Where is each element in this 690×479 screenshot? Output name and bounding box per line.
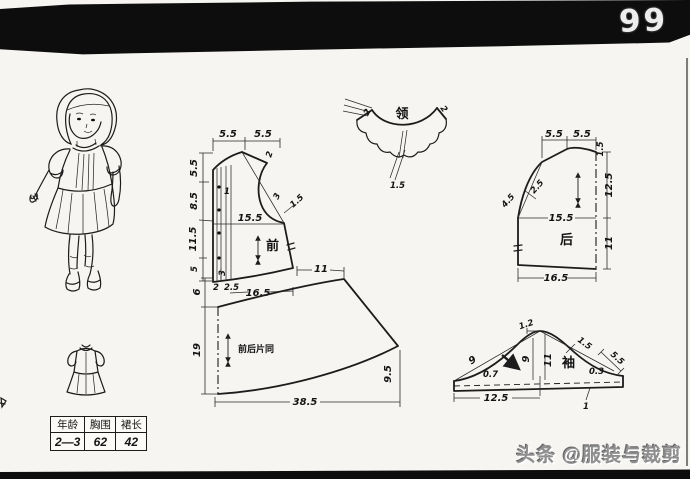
dim-back-hem: 16.5: [544, 273, 569, 284]
watermark: 头条 @服装与裁剪: [516, 440, 682, 467]
book-page: { "page": { "number": "99", "watermark":…: [0, 0, 690, 479]
dim-back-armhole-b: 4.5: [499, 192, 517, 211]
shoe: [87, 271, 100, 290]
placket-lines: [217, 165, 231, 281]
dim-front-extension: 11: [314, 264, 328, 275]
dim-front-side2: 8.5: [189, 192, 200, 210]
collar-piece-label: 领: [395, 106, 408, 121]
dim-front-hem-tuck: 3: [218, 270, 228, 276]
size-table-header-row: 年龄 胸围 裙长: [51, 417, 147, 433]
band-fold-line: [454, 382, 623, 386]
dim-front-chest: 15.5: [238, 213, 263, 224]
hair: [57, 89, 117, 145]
dim-sleeve-back-ease: 1.5: [575, 335, 593, 352]
scan-artifact-mark: [0, 398, 6, 407]
size-table-value-length: 42: [116, 433, 147, 451]
dim-front-top-right: 5.5: [254, 129, 272, 140]
eye: [91, 119, 95, 122]
back-piece-label: 后: [560, 232, 573, 247]
dim-front-hem-b: 2.5: [224, 283, 239, 293]
dim-back-top-right: 5.5: [573, 129, 591, 140]
collar-pattern: 领 2 2 1.5: [343, 99, 449, 191]
sleeve-piece-label: 袖: [562, 355, 575, 370]
legs: [69, 235, 94, 274]
back-top-outline: [518, 148, 596, 218]
dim-sleeve-cap-notch: 1.2: [518, 318, 535, 332]
dim-skirt-side: 9.5: [383, 365, 394, 383]
bodice: [58, 147, 112, 188]
size-table-value-row: 2—3 62 42: [51, 433, 147, 451]
dim-back-chest: 15.5: [549, 213, 574, 224]
dim-back-top-left: 5.5: [545, 129, 563, 140]
arm: [30, 170, 49, 202]
dim-collar-right: 2: [438, 104, 450, 115]
dim-sleeve-cap-height: 9: [521, 355, 532, 362]
dim-sleeve-band-height: 1: [583, 402, 589, 412]
dim-sleeve-back-dip: 0.3: [589, 367, 604, 377]
pattern-artwork: 5.5 5.5 5.5 8.5 11.5 5 1 2 3 1.5 15.5 前 …: [0, 0, 690, 479]
back-lower-outline: [518, 218, 596, 269]
dim-sleeve-end-slope: 5.5: [608, 350, 626, 368]
dim-front-hem-a: 2: [213, 283, 219, 293]
dim-skirt-length: 19: [192, 343, 203, 357]
puff-sleeve: [101, 146, 121, 175]
size-table-header-age: 年龄: [51, 417, 85, 433]
dim-front-side4: 5: [190, 266, 200, 272]
dim-back-upper: 12.5: [604, 173, 615, 198]
shoe: [66, 272, 80, 291]
skirt-pattern: 6 19 38.5 9.5 前后片同: [192, 278, 400, 408]
dim-back-armhole-a: 2.5: [529, 178, 547, 196]
dim-front-side3: 11.5: [188, 227, 199, 252]
dim-skirt-rise: 6: [192, 288, 203, 295]
size-table-header-length: 裙长: [116, 417, 147, 433]
front-piece-label: 前: [266, 238, 279, 253]
size-table-header-chest: 胸围: [85, 417, 116, 433]
size-table-value-age: 2—3: [51, 433, 85, 451]
dim-sleeve-half-width: 12.5: [484, 393, 509, 404]
child-illustration: [30, 89, 121, 291]
sleeve-band: [454, 376, 623, 391]
dim-sleeve-center-height: 11: [543, 353, 554, 367]
back-bodice-pattern: 5.5 5.5 1.5 12.5 11 15.5 2.5 4.5 后 16.5: [499, 129, 615, 284]
dim-front-shoulder: 2: [264, 150, 275, 159]
front-bodice-pattern: 5.5 5.5 5.5 8.5 11.5 5 1 2 3 1.5 15.5 前 …: [188, 129, 344, 299]
dim-back-lower: 11: [604, 236, 615, 250]
dim-front-top-left: 5.5: [219, 129, 237, 140]
skirt-note: 前后片同: [238, 343, 274, 354]
dim-skirt-hem: 38.5: [293, 397, 318, 408]
dim-front-armhole: 3: [272, 192, 284, 202]
dim-collar-overlap: 1.5: [390, 181, 405, 191]
sleeve-pattern: 1.2 9 0.7 9 11 1.5 5.5 0.3 袖 1 12.5: [454, 318, 626, 412]
size-table: 年龄 胸围 裙长 2—3 62 42: [50, 416, 147, 451]
dim-back-neck-drop: 1.5: [596, 141, 606, 156]
bias-arrow: [502, 355, 519, 369]
eye: [77, 118, 81, 121]
size-table-value-chest: 62: [85, 433, 116, 451]
dim-sleeve-cap-diagonal: 9: [467, 354, 479, 367]
puff-sleeve: [49, 149, 70, 178]
dim-sleeve-front-dip: 0.7: [483, 370, 498, 380]
dim-front-side1: 5.5: [189, 159, 200, 177]
dim-front-placket: 1: [224, 187, 230, 197]
dress-sketch: [67, 345, 105, 395]
